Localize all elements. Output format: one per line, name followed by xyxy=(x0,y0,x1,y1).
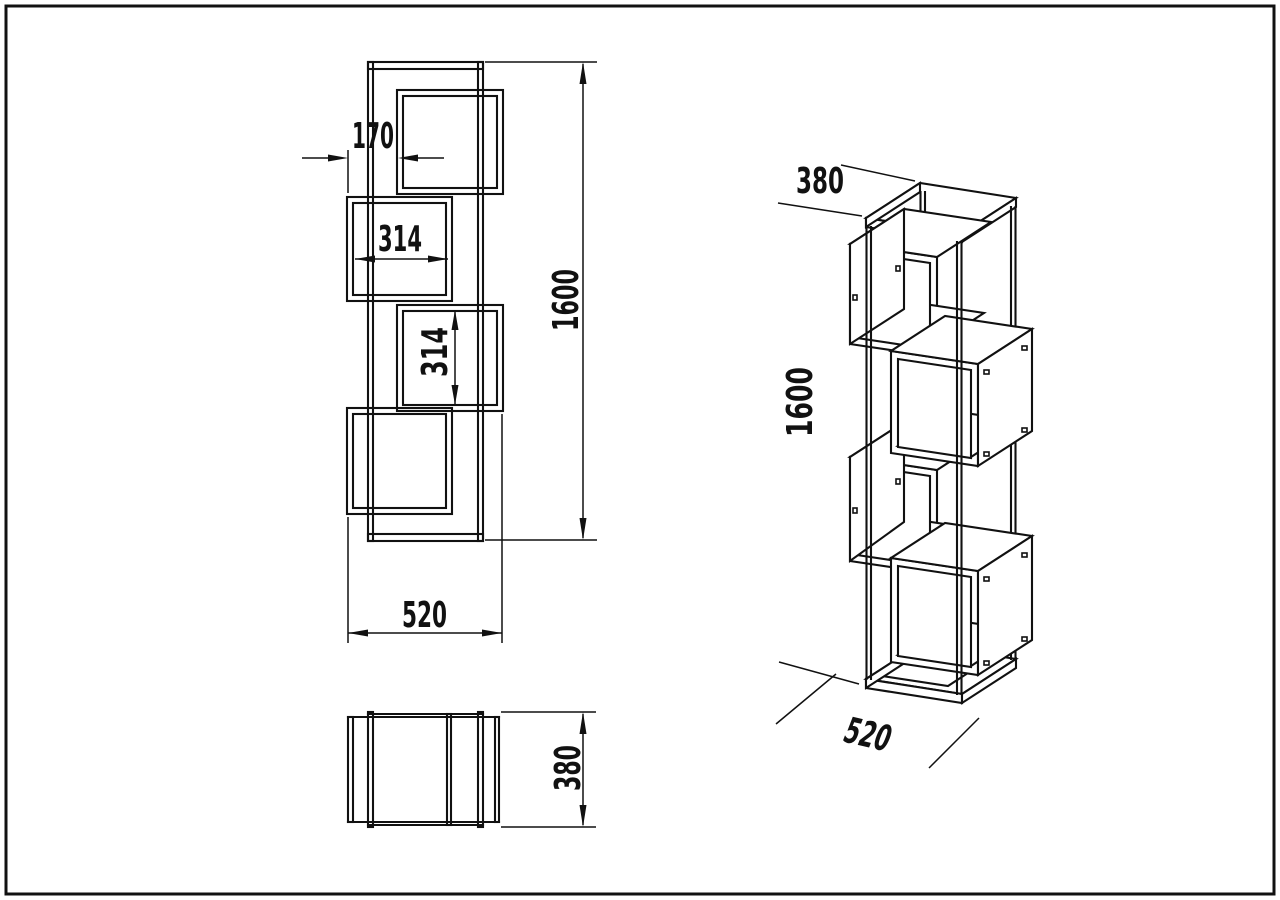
top-right-panel xyxy=(495,717,499,822)
dim-1600-label: 1600 xyxy=(546,269,587,331)
technical-drawing-page: 170 314 314 1600 xyxy=(0,0,1280,900)
front-box4-outer xyxy=(347,408,452,514)
iso-dim-380-label: 380 xyxy=(796,161,844,202)
dim-380-top-view: 380 xyxy=(501,712,596,827)
top-mid-panel xyxy=(447,714,451,825)
dim-380tv-label: 380 xyxy=(548,745,589,791)
front-bottom-bar xyxy=(368,534,483,541)
top-right-rail xyxy=(478,712,483,827)
dim-520-label: 520 xyxy=(402,595,447,636)
top-left-rail xyxy=(368,712,373,827)
front-top-bar xyxy=(368,62,483,69)
dim-314-vertical: 314 xyxy=(415,310,459,405)
iso-dim-1600-label: 1600 xyxy=(780,367,821,437)
isometric-view: 380 1600 520 xyxy=(776,161,1032,768)
dim-170-label: 170 xyxy=(352,116,394,157)
top-view: 380 xyxy=(348,712,596,827)
iso-dim-1600: 1600 xyxy=(779,367,859,684)
iso-dim-520-label: 520 xyxy=(838,709,898,760)
dim-314h-label: 314 xyxy=(378,219,422,260)
front-box1-outer xyxy=(397,90,503,194)
top-left-panel xyxy=(348,717,353,822)
page-border xyxy=(6,6,1274,894)
drawing-canvas: 170 314 314 1600 xyxy=(0,0,1280,900)
dim-314v-label: 314 xyxy=(415,327,456,377)
front-right-rail xyxy=(478,62,483,541)
front-view: 170 314 314 1600 xyxy=(302,62,597,643)
